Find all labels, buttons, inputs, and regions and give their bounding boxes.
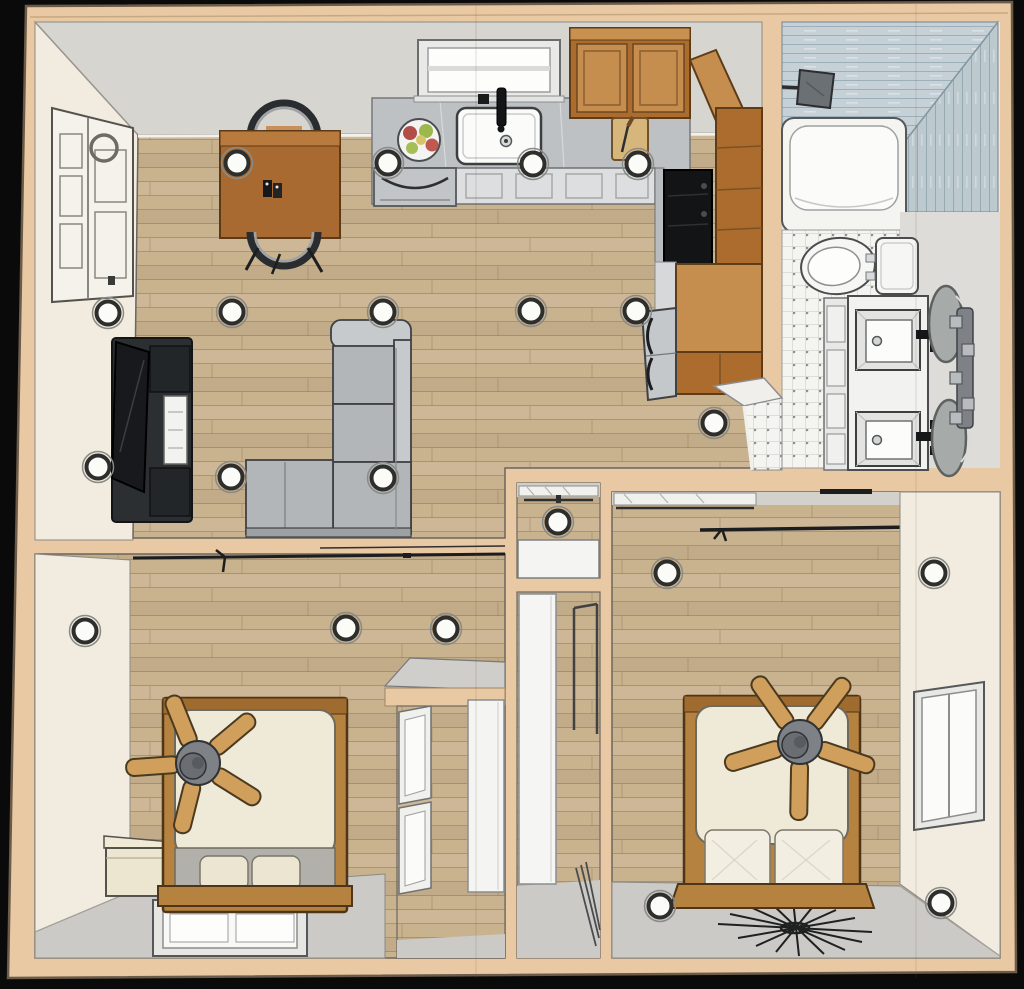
recessed-light (216, 462, 247, 493)
floorplan-image (0, 0, 1024, 989)
kitchen-window (414, 40, 564, 102)
closet-shelf (614, 493, 756, 505)
recessed-light (516, 296, 547, 327)
fan-blade (126, 756, 181, 777)
recessed-light (645, 891, 676, 922)
recessed-light (543, 507, 574, 538)
floorplan-viewport (0, 0, 1024, 989)
recessed-light (431, 614, 462, 645)
recessed-light (70, 616, 101, 647)
recessed-light (373, 148, 404, 179)
fruit-bowl (398, 119, 440, 161)
recessed-light (919, 558, 950, 589)
range (664, 170, 712, 266)
media-console-fireplace (112, 338, 192, 522)
recessed-light (368, 463, 399, 494)
pillow (775, 830, 843, 892)
recessed-light (368, 297, 399, 328)
recessed-light (93, 298, 124, 329)
toilet (798, 234, 918, 297)
recessed-light (623, 149, 654, 180)
footboard (158, 886, 352, 906)
recessed-light (518, 149, 549, 180)
footboard (670, 884, 874, 908)
pillow (200, 856, 248, 890)
recessed-light (652, 558, 683, 589)
front-door (52, 108, 133, 302)
bathtub (782, 118, 906, 232)
recessed-light (222, 148, 253, 179)
pillow (705, 830, 770, 892)
bedroom-left-closet (385, 658, 505, 958)
recessed-light (83, 452, 114, 483)
recessed-light (331, 613, 362, 644)
closet-door (518, 540, 599, 578)
entry-hall (517, 592, 600, 958)
island-cabinet (676, 264, 762, 394)
window (914, 682, 984, 830)
recessed-light (217, 297, 248, 328)
recessed-light (621, 296, 652, 327)
bed (670, 696, 874, 908)
recessed-light (926, 888, 957, 919)
door-handle (108, 276, 115, 285)
curtain-rod (820, 489, 872, 494)
pillow (252, 856, 300, 890)
recessed-light (699, 408, 730, 439)
fan-blade (790, 760, 808, 820)
